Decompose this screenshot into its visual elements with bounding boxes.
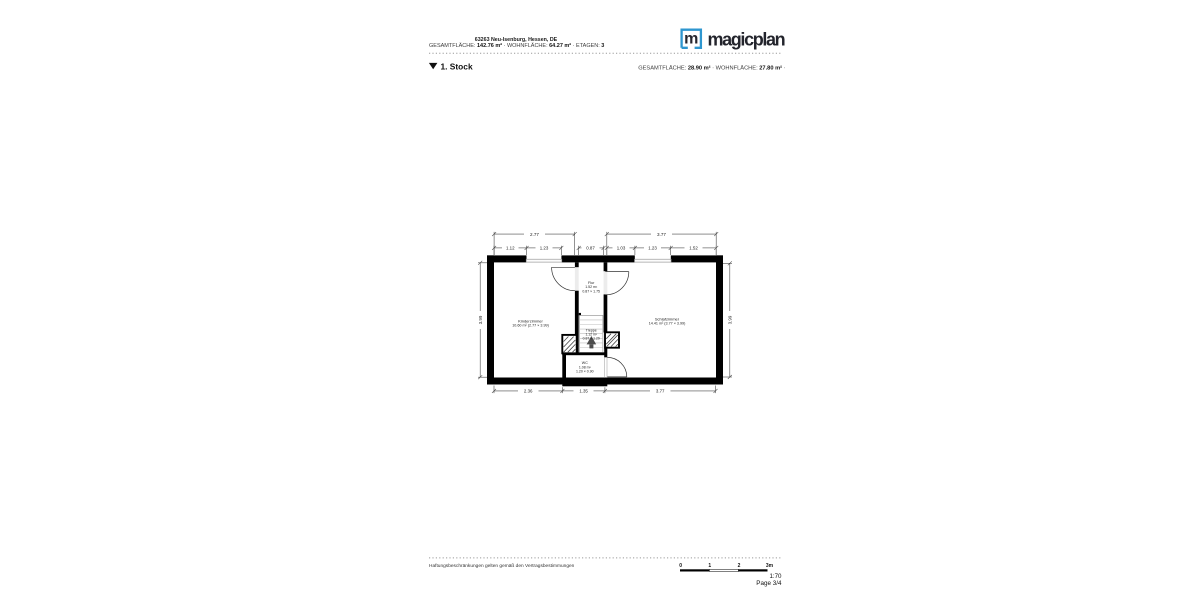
svg-text:1.23: 1.23 <box>540 246 549 251</box>
svg-text:magicplan: magicplan <box>708 30 785 50</box>
svg-text:1.35: 1.35 <box>579 389 588 394</box>
svg-text:1. Stock: 1. Stock <box>441 62 473 72</box>
svg-text:1: 1 <box>708 563 711 569</box>
svg-text:1.03: 1.03 <box>617 246 626 251</box>
svg-text:0.87 × 1.29: 0.87 × 1.29 <box>583 336 600 340</box>
svg-text:1.23: 1.23 <box>648 246 657 251</box>
svg-text:1.12: 1.12 <box>506 246 515 251</box>
svg-text:1.20 × 0.90: 1.20 × 0.90 <box>576 369 594 373</box>
svg-text:m: m <box>684 31 698 48</box>
svg-text:Haftungsbeschränkungen gelten: Haftungsbeschränkungen gelten gemäß den … <box>429 563 575 569</box>
svg-text:GESAMTFLÄCHE: 28.90 m² · WOHNF: GESAMTFLÄCHE: 28.90 m² · WOHNFLÄCHE: 27.… <box>638 64 785 71</box>
svg-text:3.99: 3.99 <box>727 315 732 324</box>
svg-text:GESAMTFLÄCHE: 142.76 m² · WOHN: GESAMTFLÄCHE: 142.76 m² · WOHNFLÄCHE: 64… <box>429 42 604 49</box>
svg-text:Page 3/4: Page 3/4 <box>756 580 782 587</box>
svg-text:3.77: 3.77 <box>656 389 665 394</box>
svg-text:1.52: 1.52 <box>689 246 698 251</box>
svg-text:10.60 m² (2.77 × 3.99): 10.60 m² (2.77 × 3.99) <box>512 323 549 327</box>
svg-text:3m: 3m <box>766 563 774 569</box>
svg-text:0: 0 <box>679 563 682 569</box>
svg-text:3.77: 3.77 <box>657 232 666 237</box>
svg-text:0.87 × 1.75: 0.87 × 1.75 <box>582 289 600 293</box>
svg-text:2.36: 2.36 <box>524 389 533 394</box>
svg-text:14.41 m² (3.77 × 3.99): 14.41 m² (3.77 × 3.99) <box>649 322 686 326</box>
svg-text:2: 2 <box>738 563 741 569</box>
svg-text:2.77: 2.77 <box>530 232 539 237</box>
svg-text:0.87: 0.87 <box>586 246 595 251</box>
svg-text:1:70: 1:70 <box>769 573 782 580</box>
svg-text:3.99: 3.99 <box>478 315 483 324</box>
